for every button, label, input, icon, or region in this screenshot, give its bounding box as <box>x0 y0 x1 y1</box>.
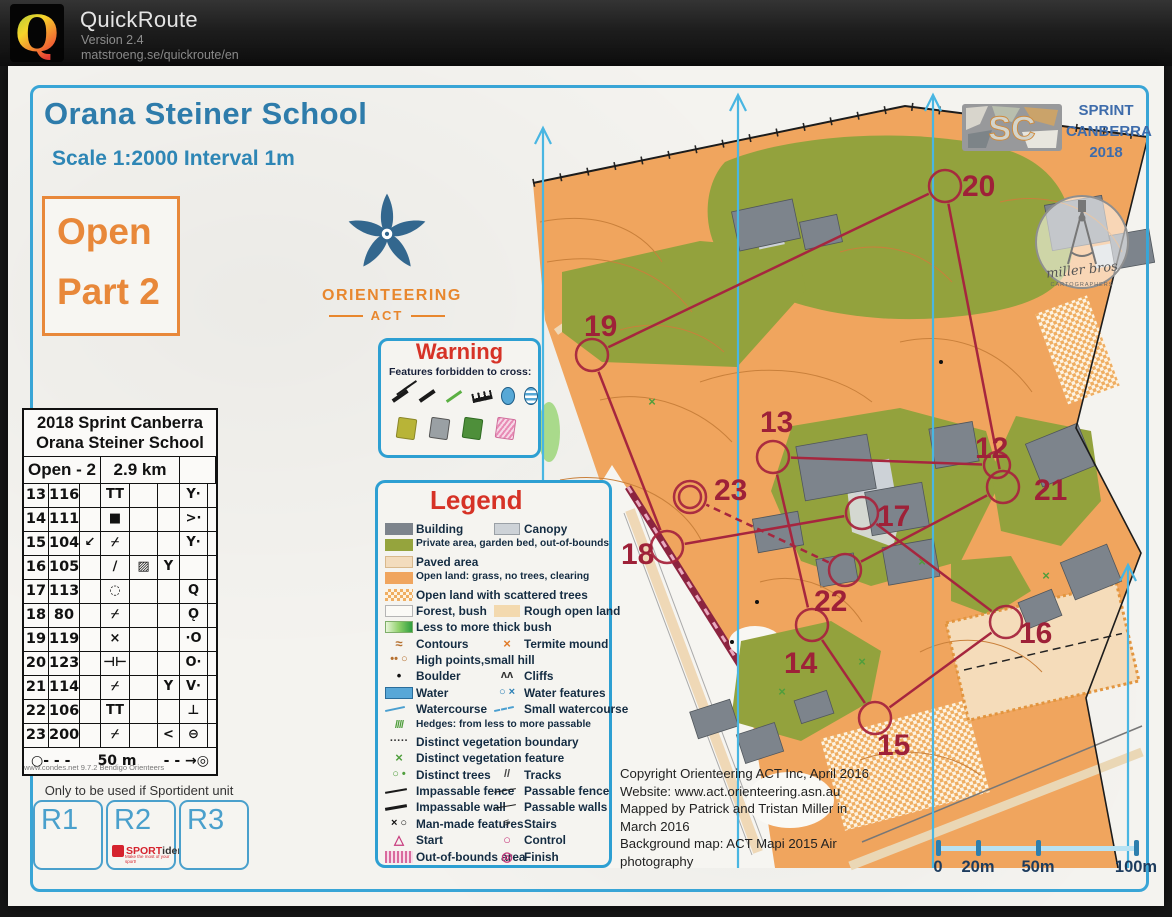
control-row: 16105∕▨Y <box>24 556 216 580</box>
control-number: 21 <box>24 676 49 699</box>
control-symbol <box>208 700 216 723</box>
control-symbol <box>130 484 158 507</box>
control-row: 20123⊣⊢O· <box>24 652 216 676</box>
control-symbol <box>208 676 216 699</box>
control-symbol <box>158 604 180 627</box>
control-row: 13116TTY· <box>24 484 216 508</box>
rent-box-r3: R3 <box>179 800 249 870</box>
event-line2: CANBERRA <box>1066 121 1146 142</box>
legend-label: Water <box>416 686 448 700</box>
legend-label: Forest, bush <box>416 604 487 618</box>
map-scalebar: 020m50m100m <box>930 838 1144 880</box>
control-symbol: V· <box>180 676 208 699</box>
legend-row: Less to more thick bush <box>378 619 609 635</box>
highpoints-icon: •• ○ <box>385 653 413 666</box>
control-symbol <box>208 724 216 747</box>
impfence-icon <box>385 788 407 794</box>
forest-icon <box>385 605 413 617</box>
miller-bros-logo: miller bros CARTOGRAPHERS <box>1030 192 1134 309</box>
impassable-wall-icon <box>419 389 436 402</box>
quickroute-logo: Q <box>10 4 64 62</box>
control-symbol: ∕ <box>101 556 130 579</box>
copyright-line: March 2016 <box>620 818 910 836</box>
control-symbol: ▨ <box>130 556 158 579</box>
event-line1: SPRINT <box>1066 100 1146 121</box>
control-symbol <box>130 532 158 555</box>
sportident-tagline: Make the most of your sport! <box>125 854 174 864</box>
control-symbol <box>80 604 101 627</box>
control-number: 20 <box>24 652 49 675</box>
legend-row: Out-of-bounds area◎Finish <box>378 849 609 865</box>
copyright-line: Mapped by Patrick and Tristan Miller in <box>620 800 910 818</box>
legend-row: •• ○High points,small hill <box>378 652 609 668</box>
copyright-line: photography <box>620 853 910 871</box>
control-code: 80 <box>49 604 80 627</box>
warning-symbols-row1 <box>391 386 538 406</box>
card-title-line1: 2018 Sprint Canberra <box>24 413 216 433</box>
control-symbol <box>158 700 180 723</box>
card-blank-cell <box>180 457 216 483</box>
control-symbol <box>158 532 180 555</box>
control-row: 23200⌿<⊖ <box>24 724 216 748</box>
legend-label: Passable fence <box>524 784 609 798</box>
control-symbol <box>80 580 101 603</box>
legend-label: Canopy <box>524 522 567 536</box>
legend-row: WatercourseSmall watercourse <box>378 701 609 717</box>
control-symbol <box>80 652 101 675</box>
control-number: 17 <box>24 580 49 603</box>
rent-box-r2: R2SPORTidentMake the most of your sport! <box>106 800 176 870</box>
vegbound-icon: ····· <box>385 735 413 748</box>
control-row: 17113◌Q <box>24 580 216 604</box>
control-symbol <box>208 652 216 675</box>
card-title-line2: Orana Steiner School <box>24 433 216 453</box>
contours-icon: ≈ <box>385 637 413 650</box>
control-symbol <box>158 508 180 531</box>
thickbush-icon <box>385 621 413 633</box>
control-symbol: Y· <box>180 484 208 507</box>
app-url-link[interactable]: matstroeng.se/quickroute/en <box>81 48 239 62</box>
legend-label: Termite mound <box>524 637 608 651</box>
square-green-icon <box>462 416 484 439</box>
rough-icon <box>494 605 520 617</box>
control-symbol <box>130 700 158 723</box>
control-symbol <box>130 676 158 699</box>
legend-label: Less to more thick bush <box>416 620 552 634</box>
control-symbol: ⊥ <box>180 700 208 723</box>
control-symbol <box>130 580 158 603</box>
control-number: 19 <box>24 628 49 651</box>
legend-label: Small watercourse <box>524 702 628 716</box>
condes-attribution: www.condes.net 9.7.2 Bendigo Orienteers <box>24 763 164 772</box>
control-code: 200 <box>49 724 80 747</box>
control-symbol <box>208 628 216 651</box>
legend-row: BuildingCanopy <box>378 521 609 537</box>
scalebar-tick <box>976 840 981 856</box>
control-symbol <box>80 556 101 579</box>
legend-row: ≈Contours×Termite mound <box>378 636 609 652</box>
control-number: 14 <box>24 508 49 531</box>
water-icon <box>385 687 413 699</box>
legend-label: Stairs <box>524 817 557 831</box>
cartographer-sub: CARTOGRAPHERS <box>1051 282 1114 288</box>
club-dash-left <box>329 315 363 317</box>
control-number: 22 <box>24 700 49 723</box>
control-symbol: ⊖ <box>180 724 208 747</box>
legend-row: Impassable wallPassable walls <box>378 799 609 815</box>
control-code: 113 <box>49 580 80 603</box>
rent-box-label: R1 <box>41 804 101 837</box>
legend-row: ·····Distinct vegetation boundary <box>378 734 609 750</box>
sportident-icon <box>112 845 124 857</box>
control-number: 16 <box>24 556 49 579</box>
oob-icon <box>385 851 413 863</box>
control-code: 123 <box>49 652 80 675</box>
legend-label: Private area, garden bed, out-of-bounds <box>416 538 609 549</box>
control-symbol: ·O <box>180 628 208 651</box>
control-symbol: >· <box>180 508 208 531</box>
warning-title: Warning <box>381 339 538 365</box>
control-symbol: ⊣⊢ <box>101 652 130 675</box>
legend-label: Tracks <box>524 768 561 782</box>
control-row: 1880⌿Ǫ <box>24 604 216 628</box>
control-symbol: ↙ <box>80 532 101 555</box>
marsh-icon <box>524 387 538 405</box>
scalebar-tick <box>1134 840 1139 856</box>
legend-row: ×Distinct vegetation feature <box>378 750 609 766</box>
control-code: 105 <box>49 556 80 579</box>
square-pink-icon <box>495 416 517 439</box>
copyright-line: Website: www.act.orienteering.asn.au <box>620 783 910 801</box>
control-symbol <box>80 508 101 531</box>
legend-title: Legend <box>430 485 609 516</box>
rent-box-label: R3 <box>187 804 247 837</box>
card-course-length: 2.9 km <box>101 457 180 483</box>
waterfeat-icon: ○ × <box>494 686 520 699</box>
control-description-card: 2018 Sprint Canberra Orana Steiner Schoo… <box>22 408 218 776</box>
square-grey-icon <box>429 416 451 439</box>
legend-row: Water○ ×Water features <box>378 685 609 701</box>
control-symbol <box>208 508 216 531</box>
sprint-canberra-logo: SC <box>962 104 1062 156</box>
legend-row: •BoulderʌʌCliffs <box>378 668 609 684</box>
control-symbol <box>80 700 101 723</box>
legend-label: Distinct vegetation feature <box>416 751 564 765</box>
control-symbol <box>208 604 216 627</box>
control-symbol <box>130 508 158 531</box>
canopy-icon <box>494 523 520 535</box>
orienteering-act-flower-icon <box>332 184 442 280</box>
titlebar: Q QuickRoute Version 2.4 matstroeng.se/q… <box>0 0 1172 66</box>
legend-label: Open land with scattered trees <box>416 588 588 602</box>
control-code: 104 <box>49 532 80 555</box>
control-rows: 13116TTY·14111■>·15104↙⌿Y·16105∕▨Y17113◌… <box>24 484 216 748</box>
control-symbol: ⌿ <box>101 676 130 699</box>
control-symbol: TT <box>101 700 130 723</box>
control-code: 114 <box>49 676 80 699</box>
legend-box: Legend BuildingCanopyPrivate area, garde… <box>375 480 612 868</box>
legend-label: Passable walls <box>524 800 607 814</box>
trees-icon: ○ • <box>385 768 413 781</box>
legend-row: × ○Man-made features≡Stairs <box>378 816 609 832</box>
control-symbol: Y· <box>180 532 208 555</box>
legend-label: Finish <box>524 850 559 864</box>
legend-row: Paved area <box>378 554 609 570</box>
control-number: 13 <box>24 484 49 507</box>
control-symbol: < <box>158 724 180 747</box>
control-symbol: ⌿ <box>101 724 130 747</box>
control-symbol <box>158 628 180 651</box>
legend-row: Open land with scattered trees <box>378 587 609 603</box>
control-code: 111 <box>49 508 80 531</box>
rent-boxes: R1R2SPORTidentMake the most of your spor… <box>33 800 249 870</box>
cliff-comb-icon <box>472 390 493 403</box>
control-symbol: Y <box>158 676 180 699</box>
termite-icon: × <box>494 637 520 650</box>
legend-label: Start <box>416 833 443 847</box>
club-region: ACT <box>371 308 404 323</box>
legend-label: Impassable wall <box>416 800 506 814</box>
control-symbol: TT <box>101 484 130 507</box>
legend-items: BuildingCanopyPrivate area, garden bed, … <box>378 521 609 865</box>
legend-label: High points,small hill <box>416 653 535 667</box>
scattered-icon <box>385 589 413 601</box>
control-number: 18 <box>24 604 49 627</box>
club-name: ORIENTEERING <box>322 287 452 305</box>
quickroute-logo-letter: Q <box>15 4 59 62</box>
legend-label: Water features <box>524 686 606 700</box>
legend-row: Impassable fencePassable fence <box>378 783 609 799</box>
legend-label: Contours <box>416 637 468 651</box>
impwall-icon <box>385 804 407 811</box>
legend-label: Distinct trees <box>416 768 491 782</box>
course-name-box: Open Part 2 <box>42 196 180 336</box>
control-symbol <box>80 676 101 699</box>
legend-label: Open land: grass, no trees, clearing <box>416 571 589 582</box>
orienteering-act-logo: ORIENTEERING ACT <box>322 184 452 323</box>
copyright-line: Copyright Orienteering ACT Inc, April 20… <box>620 765 910 783</box>
boulder-icon: • <box>385 669 413 682</box>
control-symbol <box>158 580 180 603</box>
control-symbol: ⌿ <box>101 532 130 555</box>
building-icon <box>385 523 413 535</box>
finish-route-end-symbol: - - →◎ <box>164 753 209 769</box>
control-symbol: ⌿ <box>101 604 130 627</box>
control-row: 15104↙⌿Y· <box>24 532 216 556</box>
cliffs-icon: ʌʌ <box>494 669 520 682</box>
warning-subtitle: Features forbidden to cross: <box>389 366 538 378</box>
control-row: 19119×·O <box>24 628 216 652</box>
hedges-icon: //// <box>385 719 413 732</box>
course-name-line2: Part 2 <box>57 265 177 319</box>
control-icon: ○ <box>494 833 520 846</box>
finish-icon: ◎ <box>494 850 520 863</box>
quickroute-window: Q QuickRoute Version 2.4 matstroeng.se/q… <box>0 0 1172 917</box>
legend-row: △Start○Control <box>378 832 609 848</box>
legend-row: Private area, garden bed, out-of-bounds <box>378 537 609 553</box>
control-code: 119 <box>49 628 80 651</box>
impassable-fence-icon <box>392 389 409 402</box>
sc-logo-letters: SC <box>988 110 1035 148</box>
legend-label: Watercourse <box>416 702 487 716</box>
scalebar-tick <box>1036 840 1041 856</box>
start-icon: △ <box>385 833 413 846</box>
tracks-icon: // <box>494 768 520 781</box>
control-number: 23 <box>24 724 49 747</box>
control-symbol: × <box>101 628 130 651</box>
control-number: 15 <box>24 532 49 555</box>
card-course-name: Open - 2 <box>24 457 101 483</box>
legend-row: ○ •Distinct trees//Tracks <box>378 767 609 783</box>
vegfeat-icon: × <box>385 751 413 764</box>
control-symbol <box>208 556 216 579</box>
legend-label: Rough open land <box>524 604 620 618</box>
scalebar-label: 0 <box>933 858 942 877</box>
control-symbol <box>80 628 101 651</box>
control-symbol <box>208 580 216 603</box>
control-symbol <box>130 604 158 627</box>
copyright-block: Copyright Orienteering ACT Inc, April 20… <box>620 765 910 871</box>
legend-label: Control <box>524 833 566 847</box>
control-row: 14111■>· <box>24 508 216 532</box>
event-line3: 2018 <box>1066 142 1146 163</box>
control-symbol <box>208 484 216 507</box>
control-symbol <box>158 484 180 507</box>
map-title: Orana Steiner School <box>44 96 367 132</box>
control-code: 116 <box>49 484 80 507</box>
control-row: 22106TT⊥ <box>24 700 216 724</box>
legend-label: Building <box>416 522 463 536</box>
app-title: QuickRoute <box>80 7 198 33</box>
control-symbol <box>130 628 158 651</box>
rent-box-r1: R1 <box>33 800 103 870</box>
control-code: 106 <box>49 700 80 723</box>
manmade-icon: × ○ <box>385 817 413 830</box>
legend-label: Hedges: from less to more passable <box>416 719 591 730</box>
open-icon <box>385 572 413 584</box>
scalebar-label: 100m <box>1115 858 1157 877</box>
control-symbol: Ǫ <box>180 604 208 627</box>
legend-row: Open land: grass, no trees, clearing <box>378 570 609 586</box>
private-icon <box>385 539 413 551</box>
control-symbol <box>130 724 158 747</box>
control-symbol <box>80 484 101 507</box>
control-symbol <box>208 532 216 555</box>
scalebar-label: 50m <box>1021 858 1054 877</box>
legend-label: Distinct vegetation boundary <box>416 735 579 749</box>
event-title: SPRINT CANBERRA 2018 <box>1066 100 1146 163</box>
control-symbol <box>130 652 158 675</box>
control-row: 21114⌿YV· <box>24 676 216 700</box>
scalebar-tick <box>936 840 941 856</box>
warning-symbols-row2 <box>397 418 538 438</box>
control-symbol: ◌ <box>101 580 130 603</box>
hedge-icon <box>446 390 463 403</box>
watercourse-icon <box>385 706 405 712</box>
legend-row: ////Hedges: from less to more passable <box>378 718 609 734</box>
control-symbol: Q <box>180 580 208 603</box>
legend-label: Cliffs <box>524 669 554 683</box>
warning-box: Warning Features forbidden to cross: <box>378 338 541 458</box>
water-icon <box>501 387 515 405</box>
course-name-line1: Open <box>57 205 177 259</box>
scalebar-label: 20m <box>961 858 994 877</box>
legend-row: Forest, bushRough open land <box>378 603 609 619</box>
paved-icon <box>385 556 413 568</box>
app-version: Version 2.4 <box>81 33 144 47</box>
square-olive-icon <box>396 416 418 439</box>
control-symbol <box>180 556 208 579</box>
club-dash-right <box>411 315 445 317</box>
control-symbol: Y <box>158 556 180 579</box>
smallwater-icon <box>494 706 514 712</box>
legend-label: Boulder <box>416 669 461 683</box>
control-symbol <box>158 652 180 675</box>
control-symbol <box>80 724 101 747</box>
legend-label: Paved area <box>416 555 478 569</box>
control-symbol: O· <box>180 652 208 675</box>
rent-box-label: R2 <box>114 804 174 837</box>
map-scale-note: Scale 1:2000 Interval 1m <box>52 147 295 171</box>
copyright-line: Background map: ACT Mapi 2015 Air <box>620 835 910 853</box>
control-symbol: ■ <box>101 508 130 531</box>
